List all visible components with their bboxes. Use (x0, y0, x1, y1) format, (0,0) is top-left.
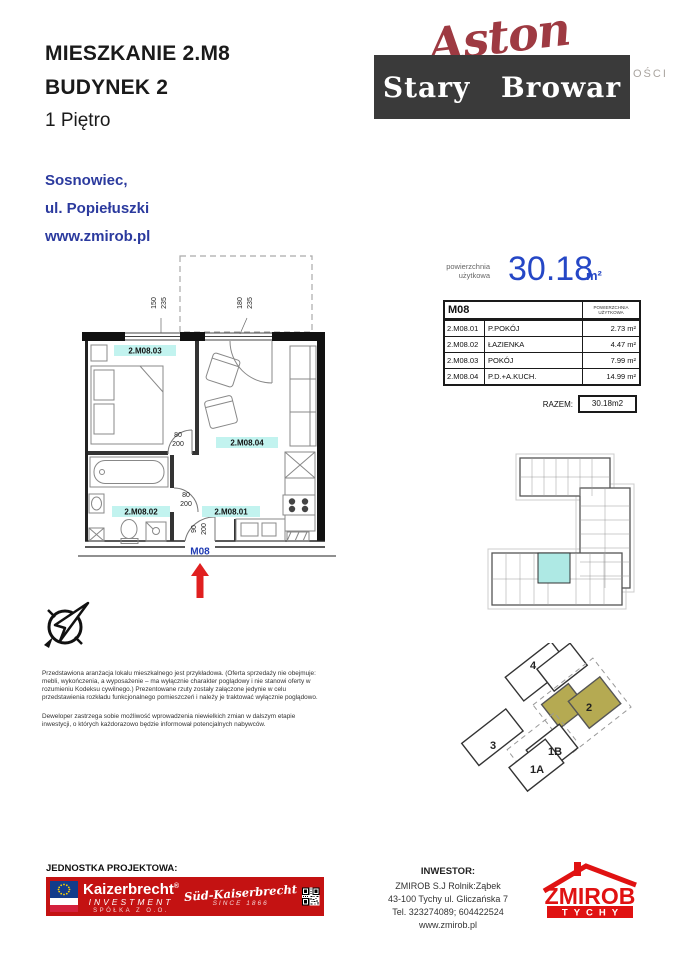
cabinet-symbol (287, 532, 309, 541)
area-table-row: 2.M08.01 P.POKÓJ 2.73 m² (445, 320, 639, 336)
toilet-symbol (121, 520, 138, 544)
washbasin-symbol (89, 494, 104, 513)
site-label-2: 2 (586, 702, 592, 714)
svg-text:180: 180 (237, 297, 244, 309)
investor-phone: Tel. 323274089; 604422524 (372, 906, 524, 919)
north-arrow-icon (36, 597, 98, 655)
total-area-value: 30.18 (508, 250, 593, 289)
address-street: ul. Popiełuszki (45, 195, 150, 223)
investor-website[interactable]: www.zmirob.pl (372, 919, 524, 932)
svg-text:2.M08.03: 2.M08.03 (128, 347, 162, 356)
site-label-4: 4 (530, 660, 537, 672)
svg-text:235: 235 (161, 297, 168, 309)
legal-paragraph-2: Deweloper zastrzega sobie możliwość wpro… (42, 713, 324, 729)
armchair-symbol (205, 352, 240, 387)
area-summary-label-1: powierzchnia (428, 262, 490, 271)
area-column-header: POWIERZCHNIA UŻYTKOWA (582, 302, 639, 318)
svg-text:200: 200 (201, 523, 208, 535)
room-name: P.D.+A.KUCH. (485, 369, 582, 384)
washing-machine-symbol (89, 528, 104, 541)
room-area: 2.73 m² (582, 321, 639, 336)
legal-paragraph-1: Przedstawiona aranżacja lokalu mieszkaln… (42, 670, 324, 702)
room-name: P.POKÓJ (485, 321, 582, 336)
kaizerbrecht-name: Kaizerbrecht (83, 881, 174, 898)
kaizerbrecht-company-type: SPÓŁKA Z O.O. (83, 907, 179, 915)
poland-flag-icon (50, 898, 78, 912)
window2-dimension: 180 235 (237, 297, 254, 334)
svg-text:200: 200 (172, 441, 184, 448)
estate-name: Stary Browar (383, 71, 621, 104)
room-code: 2.M08.01 (445, 321, 485, 336)
svg-text:235: 235 (247, 297, 254, 309)
nightstand-symbol (91, 345, 107, 361)
room-area: 7.99 m² (582, 353, 639, 368)
total-area-unit: m² (586, 268, 602, 283)
armchair-symbol (204, 395, 238, 429)
svg-text:90: 90 (191, 525, 198, 533)
site-label-3: 3 (490, 740, 496, 752)
bathroom-cabinet-symbol (146, 522, 166, 541)
area-table-header: M08 POWIERZCHNIA UŻYTKOWA (445, 302, 639, 320)
site-plan: 4 2 3 1B 1A (455, 643, 665, 803)
kitchen-counter (285, 515, 315, 531)
investor-address: 43-100 Tychy ul. Gliczańska 7 (372, 893, 524, 906)
legal-disclaimer: Przedstawiona aranżacja lokalu mieszkaln… (42, 670, 324, 740)
entrance-arrow-icon (191, 563, 209, 598)
eu-flag-icon (50, 881, 78, 898)
room-label-r03: 2.M08.03 (114, 345, 176, 356)
address-block: Sosnowiec, ul. Popiełuszki www.zmirob.pl (45, 167, 150, 251)
svg-text:150: 150 (151, 297, 158, 309)
area-table-row: 2.M08.03 POKÓJ 7.99 m² (445, 352, 639, 368)
room-label-r04: 2.M08.04 (216, 437, 278, 448)
design-unit-label: JEDNOSTKA PROJEKTOWA: (46, 863, 177, 874)
investor-block: INWESTOR: ZMIROB S.J Rolnik:Ząbek 43-100… (372, 866, 524, 932)
svg-text:80: 80 (174, 432, 182, 439)
unit-code: M08 (445, 302, 582, 318)
svg-text:2.M08.02: 2.M08.02 (124, 508, 158, 517)
room-name: ŁAZIENKA (485, 337, 582, 352)
kaizerbrecht-investment: INVESTMENT (83, 897, 179, 907)
estate-logo-box: Stary Browar (374, 55, 630, 119)
door1-dimension: 80 200 (172, 432, 184, 448)
kaizerbrecht-text-block: Kaizerbrecht® INVESTMENT SPÓŁKA Z O.O. (83, 879, 179, 915)
total-label: RAZEM: (543, 400, 573, 409)
room-code: 2.M08.02 (445, 337, 485, 352)
svg-text:80: 80 (182, 492, 190, 499)
site-label-1a: 1A (530, 764, 544, 776)
kitchen-counter (285, 478, 315, 495)
zmirob-city: TYCHY (562, 908, 624, 919)
area-summary-label-2: użytkowa (428, 271, 490, 280)
zmirob-logo: ZMIROB TYCHY (540, 858, 640, 920)
balcony-door-swing (230, 341, 272, 383)
investor-name: ZMIROB S.J Rolnik:Ząbek (372, 880, 524, 893)
room-label-r02: 2.M08.02 (112, 506, 170, 517)
kitchen-sink-symbol (236, 519, 285, 541)
apartment-floor-plan: 150 235 180 235 80 (78, 248, 338, 608)
area-table-row: 2.M08.04 P.D.+A.KUCH. 14.99 m² (445, 368, 639, 384)
room-area: 4.47 m² (582, 337, 639, 352)
website-link[interactable]: www.zmirob.pl (45, 223, 150, 251)
sofa-symbol (290, 346, 316, 446)
area-table-total: RAZEM: 30.18m2 (443, 395, 637, 413)
room-area: 14.99 m² (582, 369, 639, 384)
apartment-title: MIESZKANIE 2.M8 (45, 42, 230, 66)
investor-label: INWESTOR: (372, 866, 524, 877)
room-code: 2.M08.04 (445, 369, 485, 384)
floorplan-offer-page: MIESZKANIE 2.M8 BUDYNEK 2 1 Piętro Sosno… (0, 0, 678, 960)
zmirob-name: ZMIROB (545, 883, 636, 909)
window1-dimension: 150 235 (151, 297, 168, 333)
flags-block (50, 881, 78, 912)
fridge-symbol (285, 452, 315, 478)
address-city: Sosnowiec, (45, 167, 150, 195)
room-name: POKÓJ (485, 353, 582, 368)
svg-text:200: 200 (180, 501, 192, 508)
total-value: 30.18m2 (578, 395, 637, 413)
kaizerbrecht-banner: Kaizerbrecht® INVESTMENT SPÓŁKA Z O.O. S… (46, 877, 324, 916)
building-title: BUDYNEK 2 (45, 76, 168, 100)
highlighted-apartment (538, 553, 570, 583)
area-table: M08 POWIERZCHNIA UŻYTKOWA 2.M08.01 P.POK… (443, 300, 641, 386)
bed-symbol (91, 366, 163, 444)
room-code: 2.M08.03 (445, 353, 485, 368)
area-summary-label: powierzchnia użytkowa (428, 262, 490, 280)
aston-tagline-suffix: OŚCI (633, 68, 668, 80)
svg-text:2.M08.01: 2.M08.01 (214, 508, 248, 517)
area-column-header-2: UŻYTKOWA (583, 310, 639, 316)
registered-mark: ® (174, 883, 179, 890)
area-table-row: 2.M08.02 ŁAZIENKA 4.47 m² (445, 336, 639, 352)
kaiserbrecht-heritage-block: Süd-Kaiserbrecht SINCE 1866 (184, 887, 297, 907)
entrance-unit-label: M08 (190, 547, 210, 558)
stove-symbol (283, 495, 315, 515)
qr-code (302, 880, 320, 913)
svg-text:2.M08.04: 2.M08.04 (230, 439, 264, 448)
room-label-r01: 2.M08.01 (202, 506, 260, 517)
site-building-3 (462, 709, 523, 766)
floor-label: 1 Piętro (45, 110, 110, 132)
site-label-1b: 1B (548, 746, 562, 758)
bathtub-symbol (90, 457, 168, 487)
building-storey-plan (482, 448, 652, 623)
